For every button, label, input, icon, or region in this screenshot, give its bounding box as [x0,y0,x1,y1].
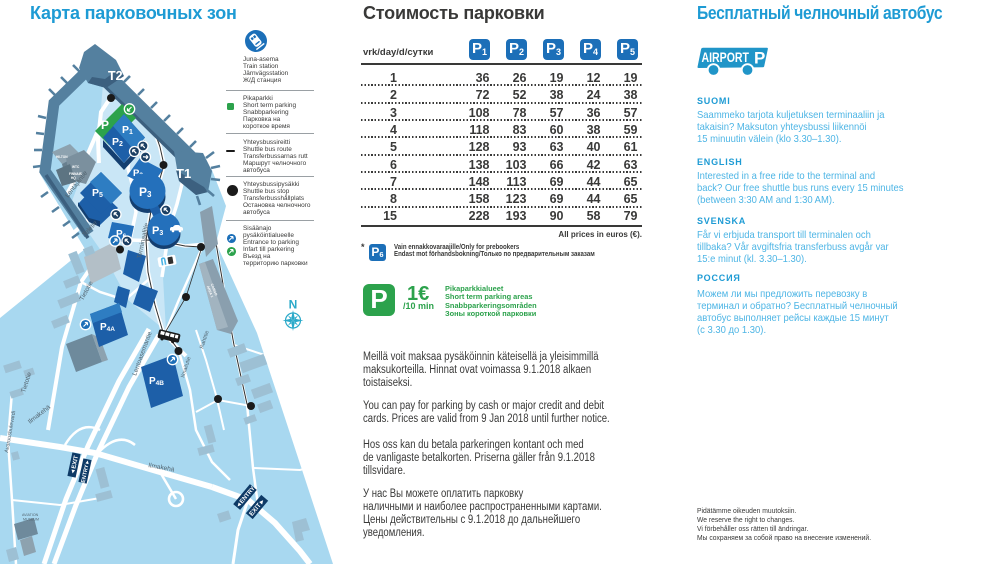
svg-text:HILTON: HILTON [56,155,68,159]
svg-text:WTC: WTC [72,165,80,169]
svg-text:N: N [289,298,298,312]
svg-text:AIRPORT: AIRPORT [702,50,750,65]
svg-text:AVIATION: AVIATION [22,513,39,517]
svg-text:P: P [754,49,765,68]
svg-text:MUSEUM: MUSEUM [23,518,39,522]
svg-text:P: P [101,118,109,132]
svg-text:T1: T1 [176,166,191,181]
svg-text:T2: T2 [108,69,123,83]
